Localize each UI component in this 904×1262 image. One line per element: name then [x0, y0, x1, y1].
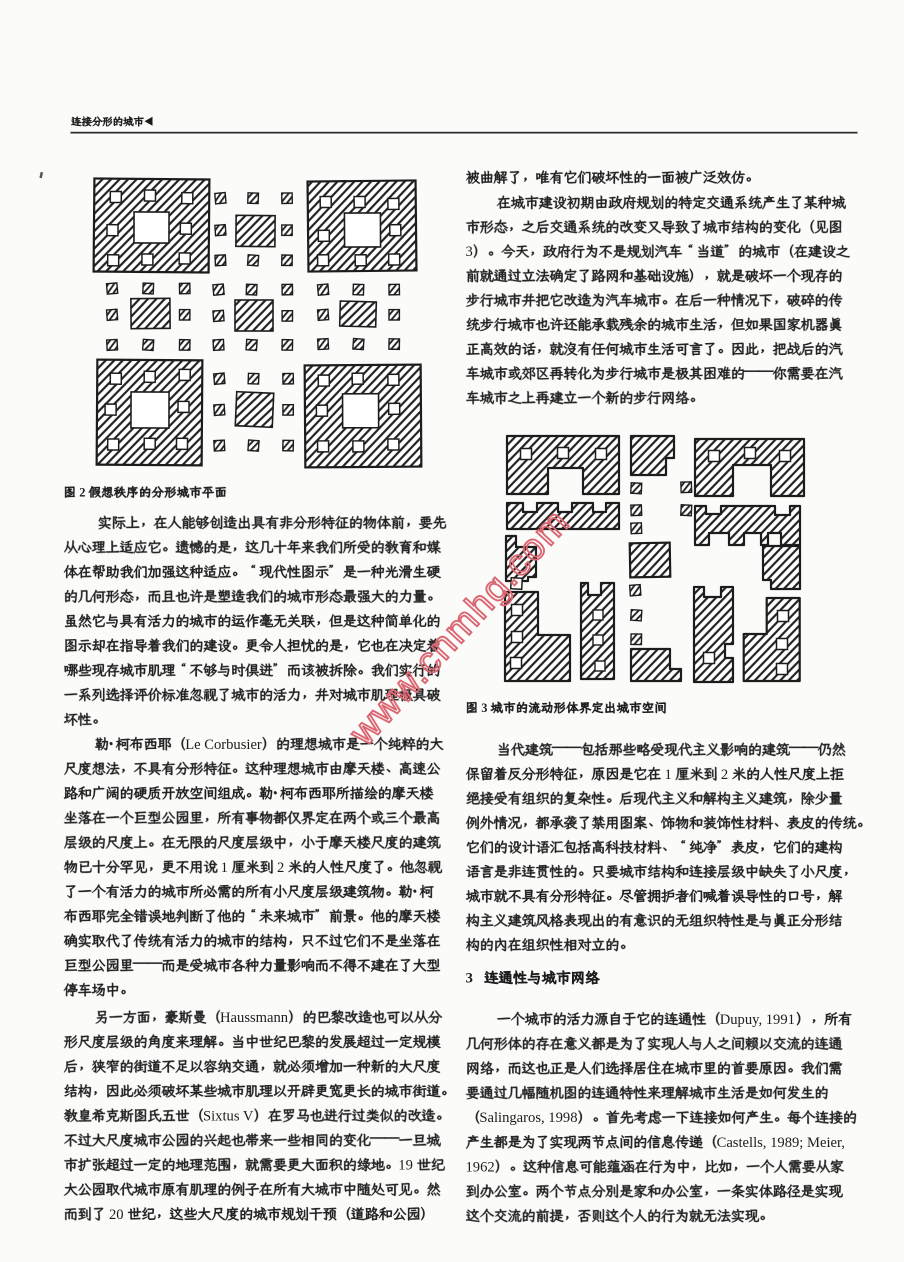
- svg-text:2: 2: [277, 860, 284, 876]
- svg-text:3: 3: [481, 701, 487, 715]
- svg-text:Haussmann: Haussmann: [220, 1010, 289, 1026]
- svg-text:Dupuy, 1991: Dupuy, 1991: [720, 1012, 795, 1028]
- svg-text:1962: 1962: [466, 1159, 495, 1175]
- svg-text:3: 3: [466, 244, 473, 260]
- svg-text:Le Corbusier: Le Corbusier: [185, 737, 262, 753]
- svg-text:19: 19: [398, 1158, 413, 1174]
- svg-text:Sixtus V: Sixtus V: [203, 1108, 254, 1124]
- svg-text:2: 2: [721, 767, 728, 783]
- svg-text:Castells, 1989; Meier,: Castells, 1989; Meier,: [717, 1135, 845, 1151]
- svg-text:1: 1: [221, 860, 228, 876]
- svg-text:2: 2: [79, 485, 85, 499]
- svg-text:3: 3: [466, 971, 473, 987]
- svg-text:20: 20: [109, 1207, 124, 1223]
- svg-text:Salingaros, 1998: Salingaros, 1998: [479, 1110, 577, 1126]
- svg-text:1: 1: [665, 767, 672, 783]
